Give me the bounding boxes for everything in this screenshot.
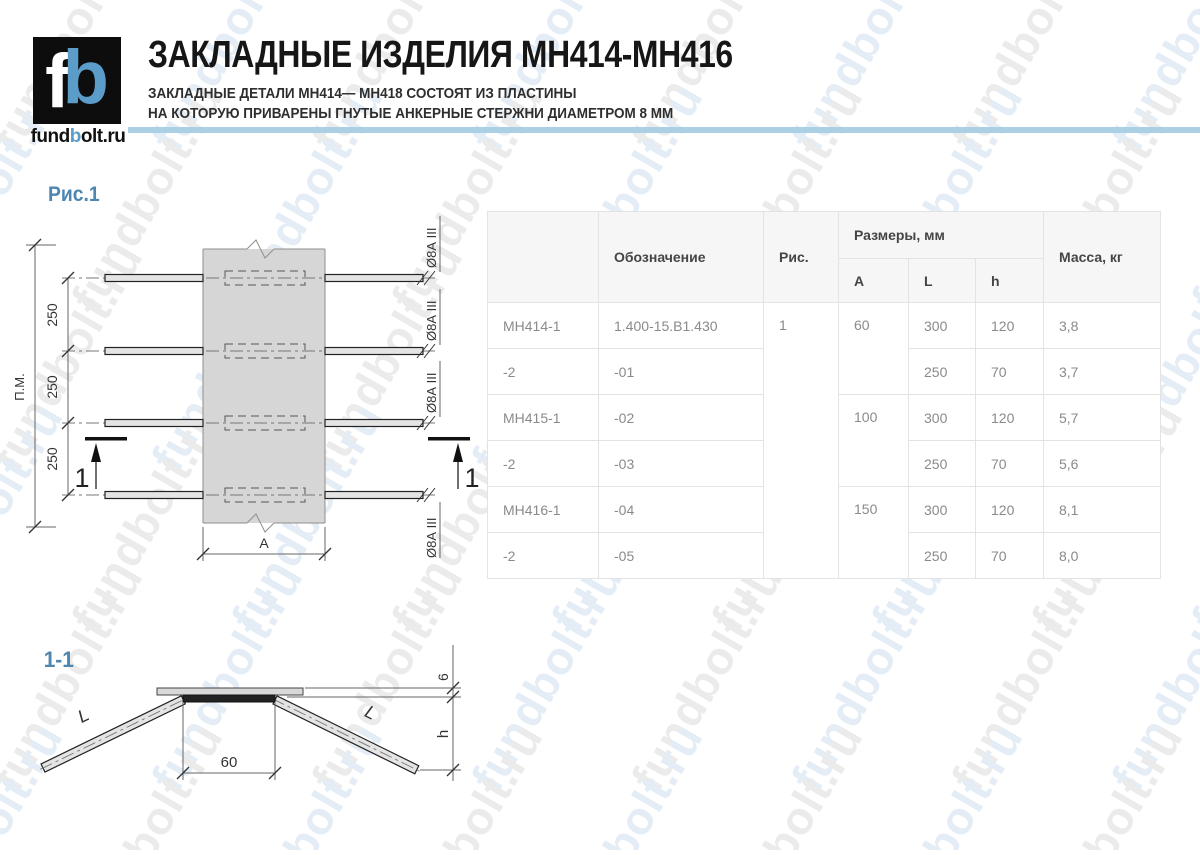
plate-section	[157, 688, 303, 695]
dim-center-label: 60	[221, 754, 238, 771]
cell-mass: 3,7	[1044, 349, 1161, 395]
dim-spacing-label-3: 250	[44, 447, 60, 471]
cell-dim-l: 250	[909, 441, 976, 487]
cell-dim-l: 300	[909, 395, 976, 441]
figure1-caption: Рис.1	[48, 183, 100, 207]
cell-dim-a: 100	[839, 395, 909, 487]
leg-label-left: L	[74, 704, 92, 726]
logo-domain-post: olt.ru	[81, 126, 126, 147]
cell-name: МН416-1	[488, 487, 599, 533]
cell-mass: 5,7	[1044, 395, 1161, 441]
cell-fig: 1	[764, 303, 839, 579]
watermark-text: fundbolt.ru	[860, 714, 1034, 850]
logo-domain-pre: fund	[31, 126, 70, 147]
cell-designation: -04	[599, 487, 764, 533]
cell-dim-h: 70	[976, 441, 1044, 487]
header-fig: Рис.	[764, 212, 839, 303]
section-mark-right: 1	[428, 437, 480, 493]
dim-thickness-label: 6	[435, 673, 451, 681]
watermark-text: fundbolt.ru	[1020, 714, 1194, 850]
spec-table: Обозначение Рис. Размеры, мм Масса, кг A…	[487, 211, 1161, 579]
rod-spec-label-3: Ø8А III	[424, 373, 439, 413]
cell-name: -2	[488, 441, 599, 487]
section-mark-number-right: 1	[464, 463, 479, 493]
rod-middle-section	[183, 695, 275, 702]
cell-dim-l: 300	[909, 487, 976, 533]
figure1-drawing: П.М. 250 250 250 Ø8А III Ø8А III Ø8А III…	[0, 210, 480, 595]
header-name	[488, 212, 599, 303]
dim-total-label: П.М.	[12, 373, 27, 400]
rod-spec-label-2: Ø8А III	[424, 301, 439, 341]
cell-designation: -02	[599, 395, 764, 441]
subtitle-line-1: ЗАКЛАДНЫЕ ДЕТАЛИ МН414— МН418 СОСТОЯТ ИЗ…	[148, 84, 673, 104]
dim-height-label: h	[435, 730, 452, 738]
cell-dim-l: 250	[909, 349, 976, 395]
cell-name: -2	[488, 349, 599, 395]
cell-mass: 8,0	[1044, 533, 1161, 579]
watermark-text: fundbolt.ru	[540, 714, 714, 850]
cell-name: МН415-1	[488, 395, 599, 441]
section1-caption: 1-1	[44, 648, 74, 673]
cell-dim-h: 70	[976, 349, 1044, 395]
header-mass: Масса, кг	[1044, 212, 1161, 303]
header-designation: Обозначение	[599, 212, 764, 303]
dim-plate-width-label: А	[259, 535, 269, 551]
blue-divider	[128, 127, 1200, 133]
subtitle-line-2: НА КОТОРУЮ ПРИВАРЕНЫ ГНУТЫЕ АНКЕРНЫЕ СТЕ…	[148, 104, 673, 124]
cell-mass: 3,8	[1044, 303, 1161, 349]
cell-name: МН414-1	[488, 303, 599, 349]
section-mark-left: 1	[74, 437, 127, 493]
section-mark-number-left: 1	[74, 463, 89, 493]
cell-dim-l: 300	[909, 303, 976, 349]
cell-designation: -05	[599, 533, 764, 579]
cell-mass: 5,6	[1044, 441, 1161, 487]
watermark-text: fundbolt.ru	[700, 714, 874, 850]
logo-domain-text: fundbolt.ru	[30, 126, 126, 148]
cell-dim-l: 250	[909, 533, 976, 579]
logo-letter-b: b	[62, 37, 108, 124]
header-dim-h: h	[976, 259, 1044, 303]
cell-dim-a: 60	[839, 303, 909, 395]
cell-dim-h: 120	[976, 303, 1044, 349]
section1-drawing: 1-1 L L 60 6 h	[0, 605, 500, 855]
cell-name: -2	[488, 533, 599, 579]
cell-designation: -03	[599, 441, 764, 487]
page-subtitle: ЗАКЛАДНЫЕ ДЕТАЛИ МН414— МН418 СОСТОЯТ ИЗ…	[148, 84, 673, 124]
logo-domain-b: b	[70, 126, 81, 147]
header-dim-a: A	[839, 259, 909, 303]
cell-mass: 8,1	[1044, 487, 1161, 533]
rod-spec-label-4: Ø8А III	[424, 518, 439, 558]
table-row: МН414-1 1.400-15.В1.430 1 60 300 120 3,8	[488, 303, 1161, 349]
cell-dim-a: 150	[839, 487, 909, 579]
rod-leg-right	[270, 695, 421, 775]
fundbolt-logo: f b	[33, 37, 121, 124]
rod-leg-left	[38, 695, 188, 774]
dim-spacing-label-1: 250	[44, 303, 60, 327]
cell-dim-h: 120	[976, 395, 1044, 441]
cell-dim-h: 70	[976, 533, 1044, 579]
cell-dim-h: 120	[976, 487, 1044, 533]
header-dim-l: L	[909, 259, 976, 303]
header-dimensions: Размеры, мм	[839, 212, 1044, 259]
rod-spec-label-1: Ø8А III	[424, 228, 439, 268]
plate-body	[203, 249, 325, 523]
dim-spacing-label-2: 250	[44, 375, 60, 399]
cell-designation: 1.400-15.В1.430	[599, 303, 764, 349]
page-title: ЗАКЛАДНЫЕ ИЗДЕЛИЯ МН414-МН416	[148, 34, 733, 77]
leg-label-right: L	[362, 701, 380, 723]
cell-designation: -01	[599, 349, 764, 395]
